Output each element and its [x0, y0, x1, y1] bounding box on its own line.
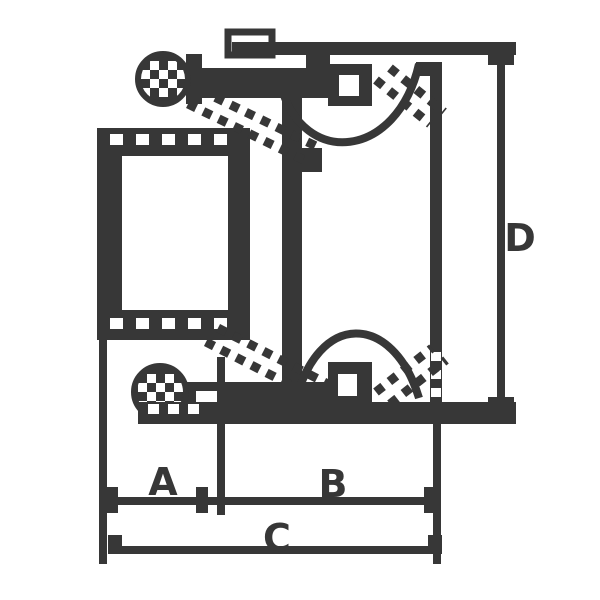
top-plate-nut-boss: [306, 52, 330, 68]
dim-a-label: A: [148, 460, 178, 504]
dim-c-label: C: [263, 516, 291, 560]
dim-height-arrow-top: [488, 53, 514, 65]
bottom-plate-hatch: [148, 404, 199, 414]
top-plate-edge: [232, 42, 516, 55]
dim-ab-tick-mid: [196, 487, 208, 513]
ext-line-mid: [217, 357, 225, 515]
dim-c-tick-left: [108, 535, 122, 546]
bottom-plate: [138, 402, 516, 424]
clamp-assembly-drawing: A B C D: [0, 0, 600, 600]
ext-line-left: [99, 340, 107, 564]
bottom-nut-hole: [338, 374, 357, 396]
dim-ab-tick-left: [106, 487, 118, 513]
dim-b-label: B: [319, 462, 348, 506]
dim-height-arrow-bottom: [488, 397, 514, 409]
dim-ab-tick-right: [424, 487, 436, 513]
dim-d-label: D: [504, 216, 536, 260]
top-nut-hole: [339, 75, 359, 96]
top-bolt-shaft: [190, 68, 332, 98]
strut-box-section: [97, 128, 250, 340]
strut-inner-cavity: [122, 156, 228, 310]
technical-drawing-canvas: A B C D: [0, 0, 600, 600]
dim-c-tick-right: [428, 535, 442, 546]
